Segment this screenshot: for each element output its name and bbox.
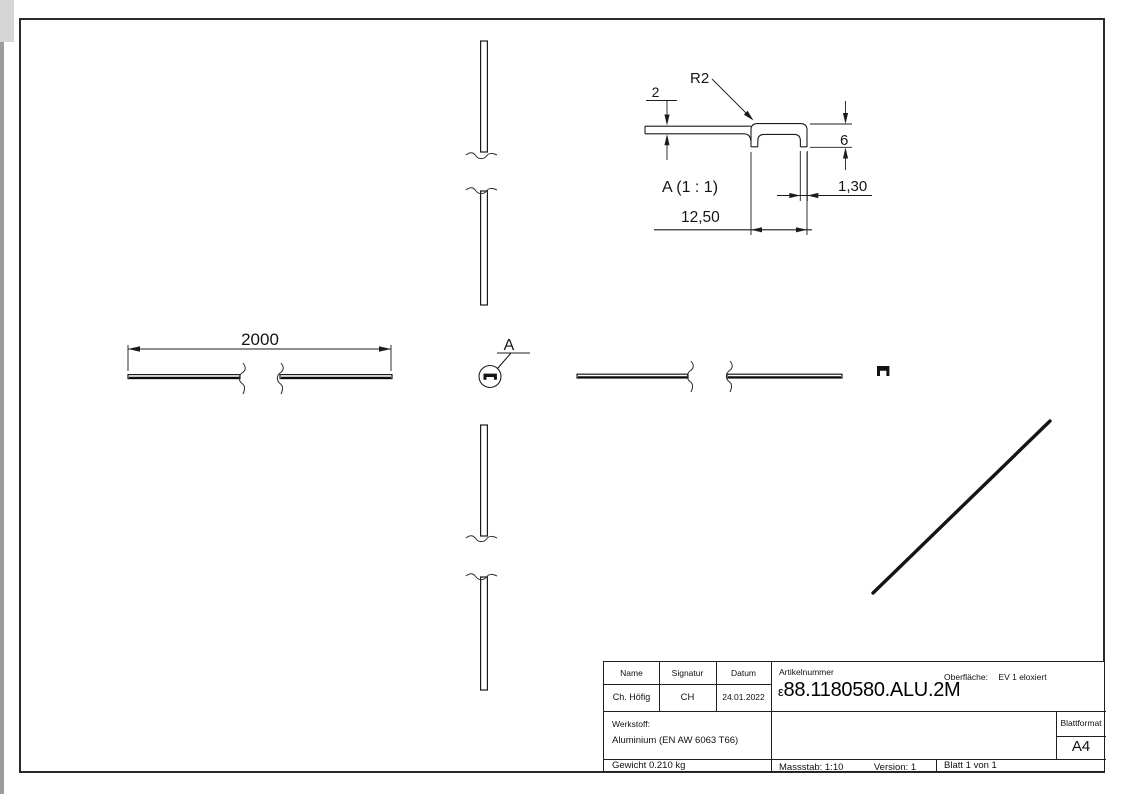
side-view-top xyxy=(466,41,497,305)
datum-value: 24.01.2022 xyxy=(716,684,771,711)
callout-label: A xyxy=(504,337,515,354)
end-view-glyph xyxy=(877,366,889,376)
dimension-wall: 1,30 xyxy=(777,151,872,201)
massstab-value: Massstab: 1:10 xyxy=(779,762,843,773)
dim-wall-text: 1,30 xyxy=(838,178,867,195)
werkstoff-value: Aluminium (EN AW 6063 T66) xyxy=(612,735,738,746)
detail-view-title: A (1 : 1) xyxy=(662,179,718,196)
signatur-label: Signatur xyxy=(659,662,716,684)
massstab-cell: Massstab: 1:10 Version: 1 xyxy=(779,759,916,773)
name-value: Ch. Höfig xyxy=(604,684,659,711)
callout-profile-glyph xyxy=(484,374,497,380)
isometric-view xyxy=(873,421,1050,593)
front-view-right xyxy=(577,361,889,392)
front-view-left: 2000 xyxy=(128,330,392,394)
dimension-thickness: 2 xyxy=(646,84,677,160)
name-label: Name xyxy=(604,662,659,684)
blatt-value: Blatt 1 von 1 xyxy=(944,759,997,773)
datum-label: Datum xyxy=(716,662,771,684)
artikelnummer-value: ε88.1180580.ALU.2M xyxy=(778,679,960,702)
dimension-radius: R2 xyxy=(690,70,754,121)
gewicht-value: Gewicht 0.210 kg xyxy=(612,759,685,773)
oberflaeche-value: EV 1 eloxiert xyxy=(998,672,1046,682)
dim-2000-text: 2000 xyxy=(241,330,279,349)
tb-divider xyxy=(771,662,772,773)
profile-channel-inner xyxy=(758,134,801,147)
tb-divider xyxy=(936,759,937,773)
detail-view: 2 R2 6 1,30 xyxy=(645,70,872,235)
tb-divider xyxy=(604,711,1106,712)
dim-depth-text: 6 xyxy=(840,132,848,149)
werkstoff-label: Werkstoff: xyxy=(612,719,650,729)
blattformat-label: Blattformat xyxy=(1056,711,1106,736)
signatur-value: CH xyxy=(659,684,716,711)
dim-radius-text: R2 xyxy=(690,70,709,87)
blattformat-value: A4 xyxy=(1056,736,1106,759)
title-block: Name Signatur Datum Ch. Höfig CH 24.01.2… xyxy=(603,661,1105,772)
detail-callout: A xyxy=(479,337,530,388)
dim-thickness-text: 2 xyxy=(652,84,660,100)
artikelnummer-label: Artikelnummer xyxy=(779,667,834,677)
version-value: Version: 1 xyxy=(874,762,916,773)
dimension-2000: 2000 xyxy=(128,330,391,371)
artikelnummer-number: 88.1180580.ALU.2M xyxy=(784,679,961,701)
dim-width-text: 12,50 xyxy=(681,209,720,226)
profile-sheet xyxy=(645,126,751,141)
page: 2000 A xyxy=(0,0,1123,794)
dimension-depth: 6 xyxy=(810,101,852,170)
side-view-bottom xyxy=(466,425,497,690)
